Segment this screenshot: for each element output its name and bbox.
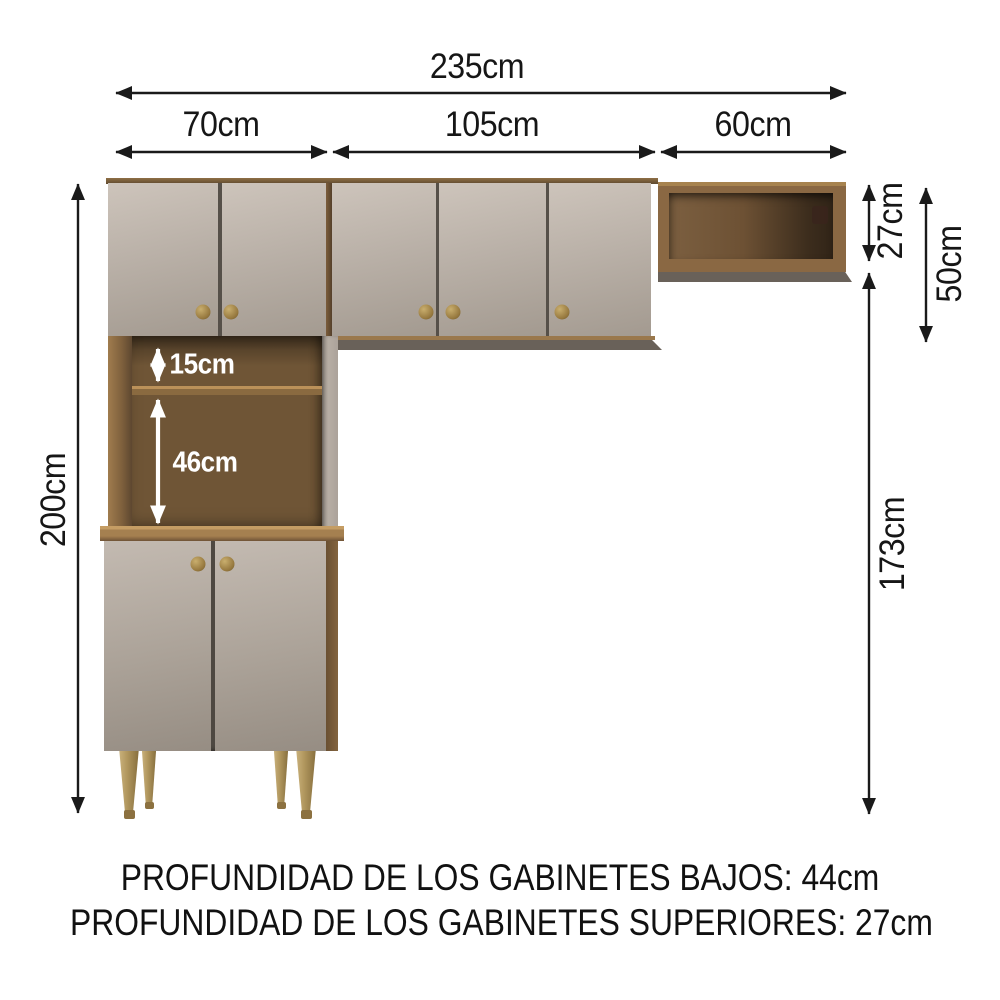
wall-shelf-bottom-band — [658, 272, 852, 282]
door-knob — [196, 305, 211, 320]
door-knob — [224, 305, 239, 320]
depth-note-upper: PROFUNDIDAD DE LOS GABINETES SUPERIORES:… — [70, 902, 930, 944]
leg-foot — [145, 802, 154, 809]
depth-note-lower: PROFUNDIDAD DE LOS GABINETES BAJOS: 44cm — [70, 857, 930, 899]
leg-foot — [301, 810, 312, 819]
door-knob — [220, 557, 235, 572]
door-knob — [191, 557, 206, 572]
cabinet-leg — [118, 751, 140, 813]
dim-clearance-height-label: 173cm — [873, 497, 913, 591]
door-knob — [419, 305, 434, 320]
dim-upper-height-label: 50cm — [930, 226, 970, 303]
wall-cabinet-bottom-lip — [330, 336, 655, 340]
wall-shelf-top-edge — [658, 182, 846, 186]
cabinet-leg — [295, 751, 317, 813]
cabinet-leg — [273, 751, 289, 805]
dim-shelf-height-label: 27cm — [871, 183, 911, 260]
dim-center-width-label: 105cm — [445, 105, 539, 145]
countertop — [100, 526, 344, 541]
leg-foot — [277, 802, 286, 809]
dim-left-width-label: 70cm — [183, 105, 260, 145]
wall-cabinet-bottom-band — [330, 340, 662, 350]
wall-cabinet-doors — [332, 183, 651, 336]
tall-upper-door-right — [222, 183, 338, 336]
door-knob — [555, 305, 570, 320]
hutch-left-frame — [108, 336, 132, 531]
hutch-right-sidewall — [322, 336, 338, 531]
leg-foot — [124, 810, 135, 819]
dim-total-width-label: 235cm — [430, 47, 524, 87]
base-door-right — [215, 541, 326, 751]
base-cabinet — [104, 541, 338, 751]
cabinet-leg — [141, 751, 157, 805]
door-knob — [446, 305, 461, 320]
dim-niche-upper-label: 15cm — [170, 349, 235, 382]
base-cabinet-side-panel — [326, 541, 338, 751]
base-door-left — [104, 541, 211, 751]
wall-shelf-interior — [669, 193, 833, 259]
product-dimension-diagram: 235cm 70cm 105cm 60cm 200cm 27cm 173cm 5… — [0, 0, 1000, 1000]
dim-total-height-label: 200cm — [34, 453, 74, 547]
dim-niche-lower-label: 46cm — [173, 447, 238, 480]
wall-shelf-bracket — [812, 206, 828, 224]
dim-right-width-label: 60cm — [715, 105, 792, 145]
hutch-shelf — [132, 386, 322, 395]
